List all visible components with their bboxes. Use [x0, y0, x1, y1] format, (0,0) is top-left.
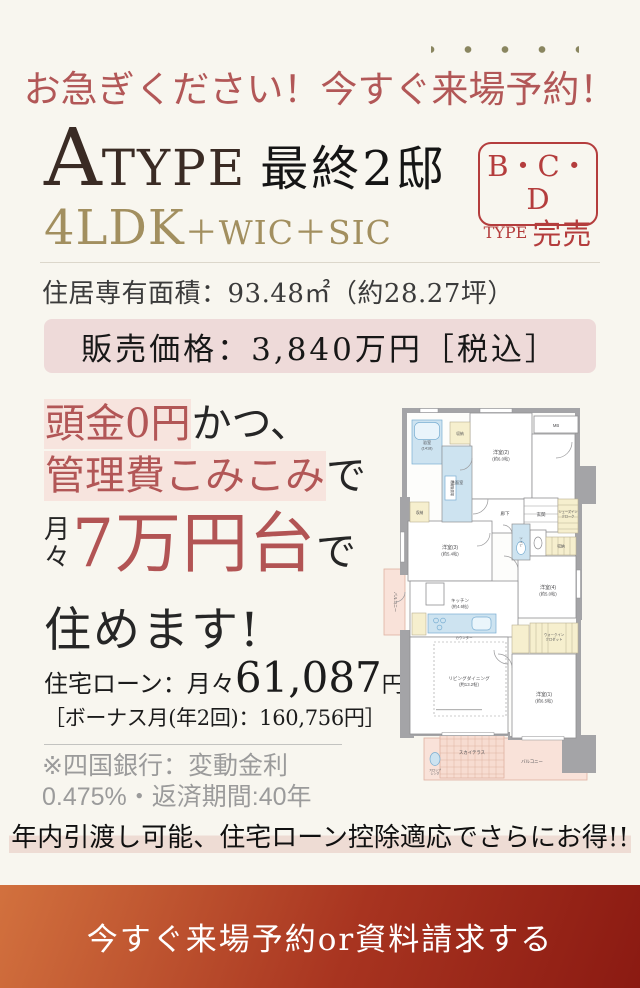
- room-label-kitchen: キッチン: [451, 598, 469, 603]
- ldk-main: 4LDK: [44, 200, 185, 256]
- room-label-shoes-closet-2: クローク: [562, 514, 575, 519]
- room-label-living-dining-size: (約13.2帖): [459, 681, 479, 688]
- room-label-kitchen-size: (約4.6帖): [452, 603, 470, 610]
- monthly-char-2: 々: [44, 544, 70, 573]
- loan-prefix: 住宅ローン：月々: [44, 670, 235, 698]
- room-label-bath: 浴室: [423, 439, 431, 446]
- soldout-type-word: TYPE: [484, 223, 528, 242]
- cta-button[interactable]: 今すぐ来場予約or資料請求する: [0, 885, 640, 988]
- copy-line-2-emphasis: 管理費こみこみ: [44, 451, 326, 501]
- room-label-laundry: 洗濯機置場: [450, 480, 455, 497]
- soldout-badge: B・C・D TYPE 完売: [478, 142, 598, 226]
- room-label-wic-1: ウォークイン: [544, 632, 565, 637]
- room-label-bedroom3-size: (約5.4帖): [441, 551, 459, 558]
- sales-copy: 頭金0円かつ、 管理費こみこみで 月々 7万円台 で 住めます!: [44, 398, 379, 660]
- fridge-area: [426, 583, 444, 605]
- cta-label: 今すぐ来場予約or資料請求する: [87, 914, 553, 959]
- room-label-living-dining: リビングダイニング: [448, 675, 490, 682]
- room-label-meter-box: MB: [553, 423, 559, 428]
- type-letter-a: A: [44, 111, 102, 204]
- loan-note-line-2: 0.475%・返済期間:40年: [42, 782, 312, 813]
- divider: [40, 262, 600, 263]
- copy-line-3-rest: で: [316, 519, 356, 581]
- kitchen-sink: [472, 617, 491, 630]
- monthly-char-1: 月: [44, 516, 70, 545]
- copy-line-2: 管理費こみこみで: [44, 450, 379, 502]
- floorplan: 浴室 (1418) 収納 洋室(2) (約6.0帖) MB 洗面室 洗濯機置場 …: [372, 402, 640, 800]
- room-label-wic-2: クロゼット: [546, 637, 563, 642]
- type-remaining-units: 最終2邸: [260, 141, 447, 197]
- copy-line-1-emphasis: 頭金0円: [44, 399, 191, 449]
- price-text: 販売価格：3,840万円［税込］: [81, 324, 559, 369]
- room-label-balcony: バルコニー: [521, 759, 543, 764]
- room-label-bath-size: (1418): [422, 447, 434, 451]
- layout-spec: 4LDK＋WIC＋SIC: [44, 200, 392, 256]
- loan-amount: 61,087: [235, 653, 382, 702]
- price-banner: 販売価格：3,840万円［税込］: [44, 319, 596, 373]
- headline-emphasized: 来場予約: [431, 44, 579, 113]
- bottom-catch-text: 年内引渡し可能、住宅ローン控除適応でさらにお得!!: [9, 823, 631, 853]
- room-label-bedroom1-size: (約6.5帖): [535, 698, 553, 705]
- soldout-line2: TYPE 完売: [480, 220, 596, 249]
- room-label-slop-sink-2: シンク: [430, 771, 439, 776]
- type-title: ATYPE最終2邸: [44, 118, 447, 199]
- kitchen-storage-area: [412, 613, 426, 635]
- room-label-bedroom4-size: (約5.0帖): [539, 591, 557, 598]
- room-label-storage-top: 収納: [456, 431, 464, 436]
- copy-line-1: 頭金0円かつ、: [44, 398, 379, 450]
- soldout-label: 完売: [532, 217, 592, 251]
- loan-bonus: ［ボーナス月(年2回)：160,756円］: [44, 702, 385, 732]
- room-label-storage-right: 収納: [557, 544, 565, 549]
- loan-line: 住宅ローン：月々61,087円: [44, 653, 404, 702]
- floorplan-svg: 浴室 (1418) 収納 洋室(2) (約6.0帖) MB 洗面室 洗濯機置場 …: [372, 402, 640, 800]
- slop-sink: [430, 753, 440, 766]
- copy-line-3: 月々 7万円台 で: [44, 508, 379, 581]
- vanity-sink: [534, 537, 542, 549]
- price-range-big: 7万円台: [72, 508, 316, 581]
- bedroom1-closet-area: [512, 625, 529, 653]
- soldout-types: B・C・D: [480, 150, 596, 217]
- headline: お急ぎください！今すぐ来場予約！: [0, 44, 640, 113]
- headline-pre: お急ぎください！今すぐ: [24, 68, 432, 111]
- bathtub: [415, 423, 440, 440]
- room-label-genkan: 玄関: [537, 511, 546, 518]
- room-label-shoes-closet-1: シューズイン: [559, 509, 578, 514]
- room-label-counter: カウンター: [456, 635, 474, 640]
- room-label-side-balcony: バルコニー: [393, 592, 398, 612]
- monthly-prefix: 月々: [44, 508, 70, 581]
- loan-divider: [44, 744, 342, 745]
- room-label-bedroom2: 洋室(2): [493, 449, 509, 456]
- copy-line-2-rest: で: [326, 453, 366, 499]
- ldk-sub: ＋WIC＋SIC: [185, 213, 392, 252]
- room-label-corridor: 廊下: [501, 510, 510, 517]
- copy-line-1-rest: かつ、: [191, 401, 309, 447]
- room-label-bedroom2-size: (約6.0帖): [492, 456, 510, 463]
- loan-note: ※四国銀行：変動金利 0.475%・返済期間:40年: [42, 751, 312, 814]
- room-label-toilet: トイレ: [519, 537, 523, 548]
- copy-line-4: 住めます!: [44, 591, 379, 660]
- room-label-bedroom4: 洋室(4): [540, 584, 556, 591]
- room-label-storage-left: 収納: [416, 510, 424, 515]
- room-label-bedroom3: 洋室(3): [442, 544, 458, 551]
- area-spec: 住居専有面積：93.48㎡（約28.27坪）: [42, 273, 514, 310]
- room-label-bedroom1: 洋室(1): [536, 691, 552, 698]
- type-word: TYPE: [102, 139, 247, 197]
- headline-post: ！: [579, 68, 616, 111]
- bottom-catch: 年内引渡し可能、住宅ローン控除適応でさらにお得!!: [0, 817, 640, 854]
- loan-note-line-1: ※四国銀行：変動金利: [42, 751, 312, 782]
